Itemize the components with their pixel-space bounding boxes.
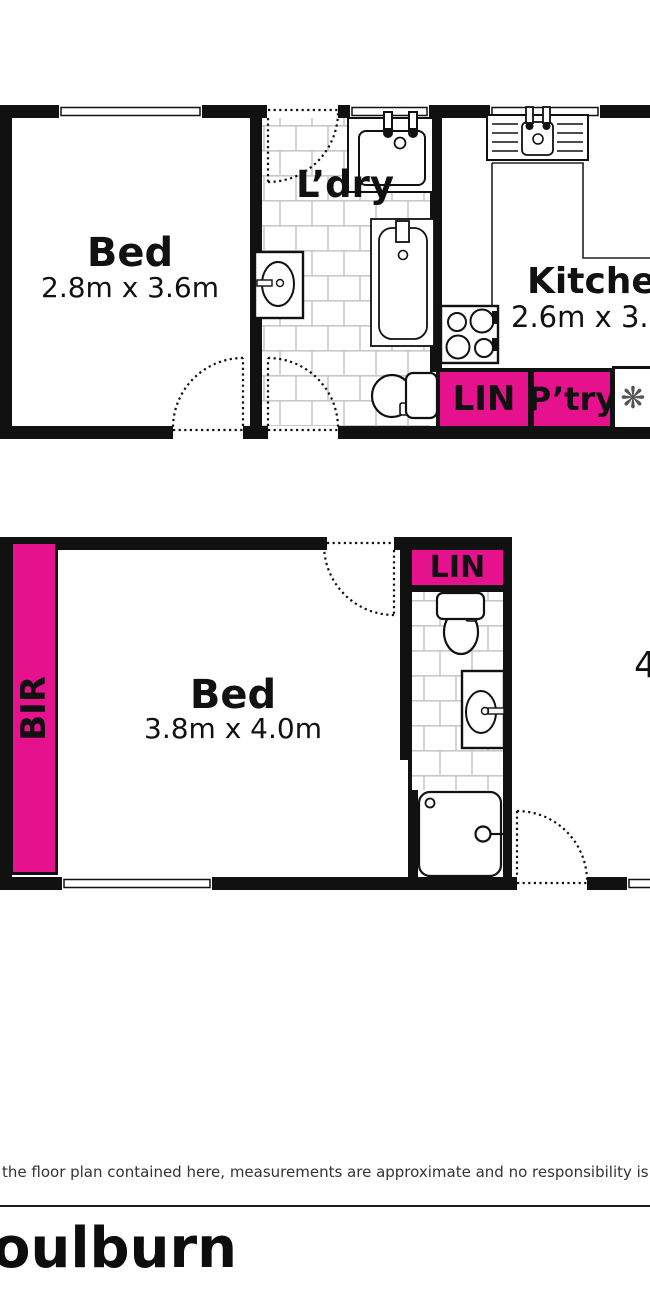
disclaimer-text: the floor plan contained here, measureme… — [2, 1163, 650, 1181]
window — [61, 108, 200, 116]
page-title: oulburn — [0, 1216, 237, 1281]
window — [64, 880, 210, 888]
bed1-name: Bed — [40, 233, 220, 273]
footer-divider — [0, 1205, 650, 1207]
kitchen-sink — [487, 107, 588, 160]
kitchen-dims: 2.6m x 3.6m — [511, 303, 650, 332]
bed2-dims: 3.8m x 4.0m — [133, 715, 333, 743]
basin-laundry — [255, 252, 303, 318]
floorplan-canvas: LIN P’try ❋ BIR LIN — [0, 0, 650, 1300]
door-arc-bed2 — [324, 543, 394, 615]
laundry-name: L’dry — [275, 166, 415, 203]
shower — [419, 792, 505, 876]
toilet-laundry — [372, 373, 437, 418]
door-arc-bed1 — [173, 358, 243, 430]
bathtub — [371, 219, 434, 346]
basin-bathroom — [462, 671, 504, 748]
kitchen-name: Kitchen — [527, 264, 650, 300]
partial-dimension: 4 — [634, 648, 650, 684]
window — [629, 880, 650, 888]
bed1-dims: 2.8m x 3.6m — [30, 274, 230, 302]
stove-cooktop — [441, 306, 499, 363]
bed2-name: Bed — [143, 675, 323, 715]
door-arc-entry — [517, 811, 587, 883]
